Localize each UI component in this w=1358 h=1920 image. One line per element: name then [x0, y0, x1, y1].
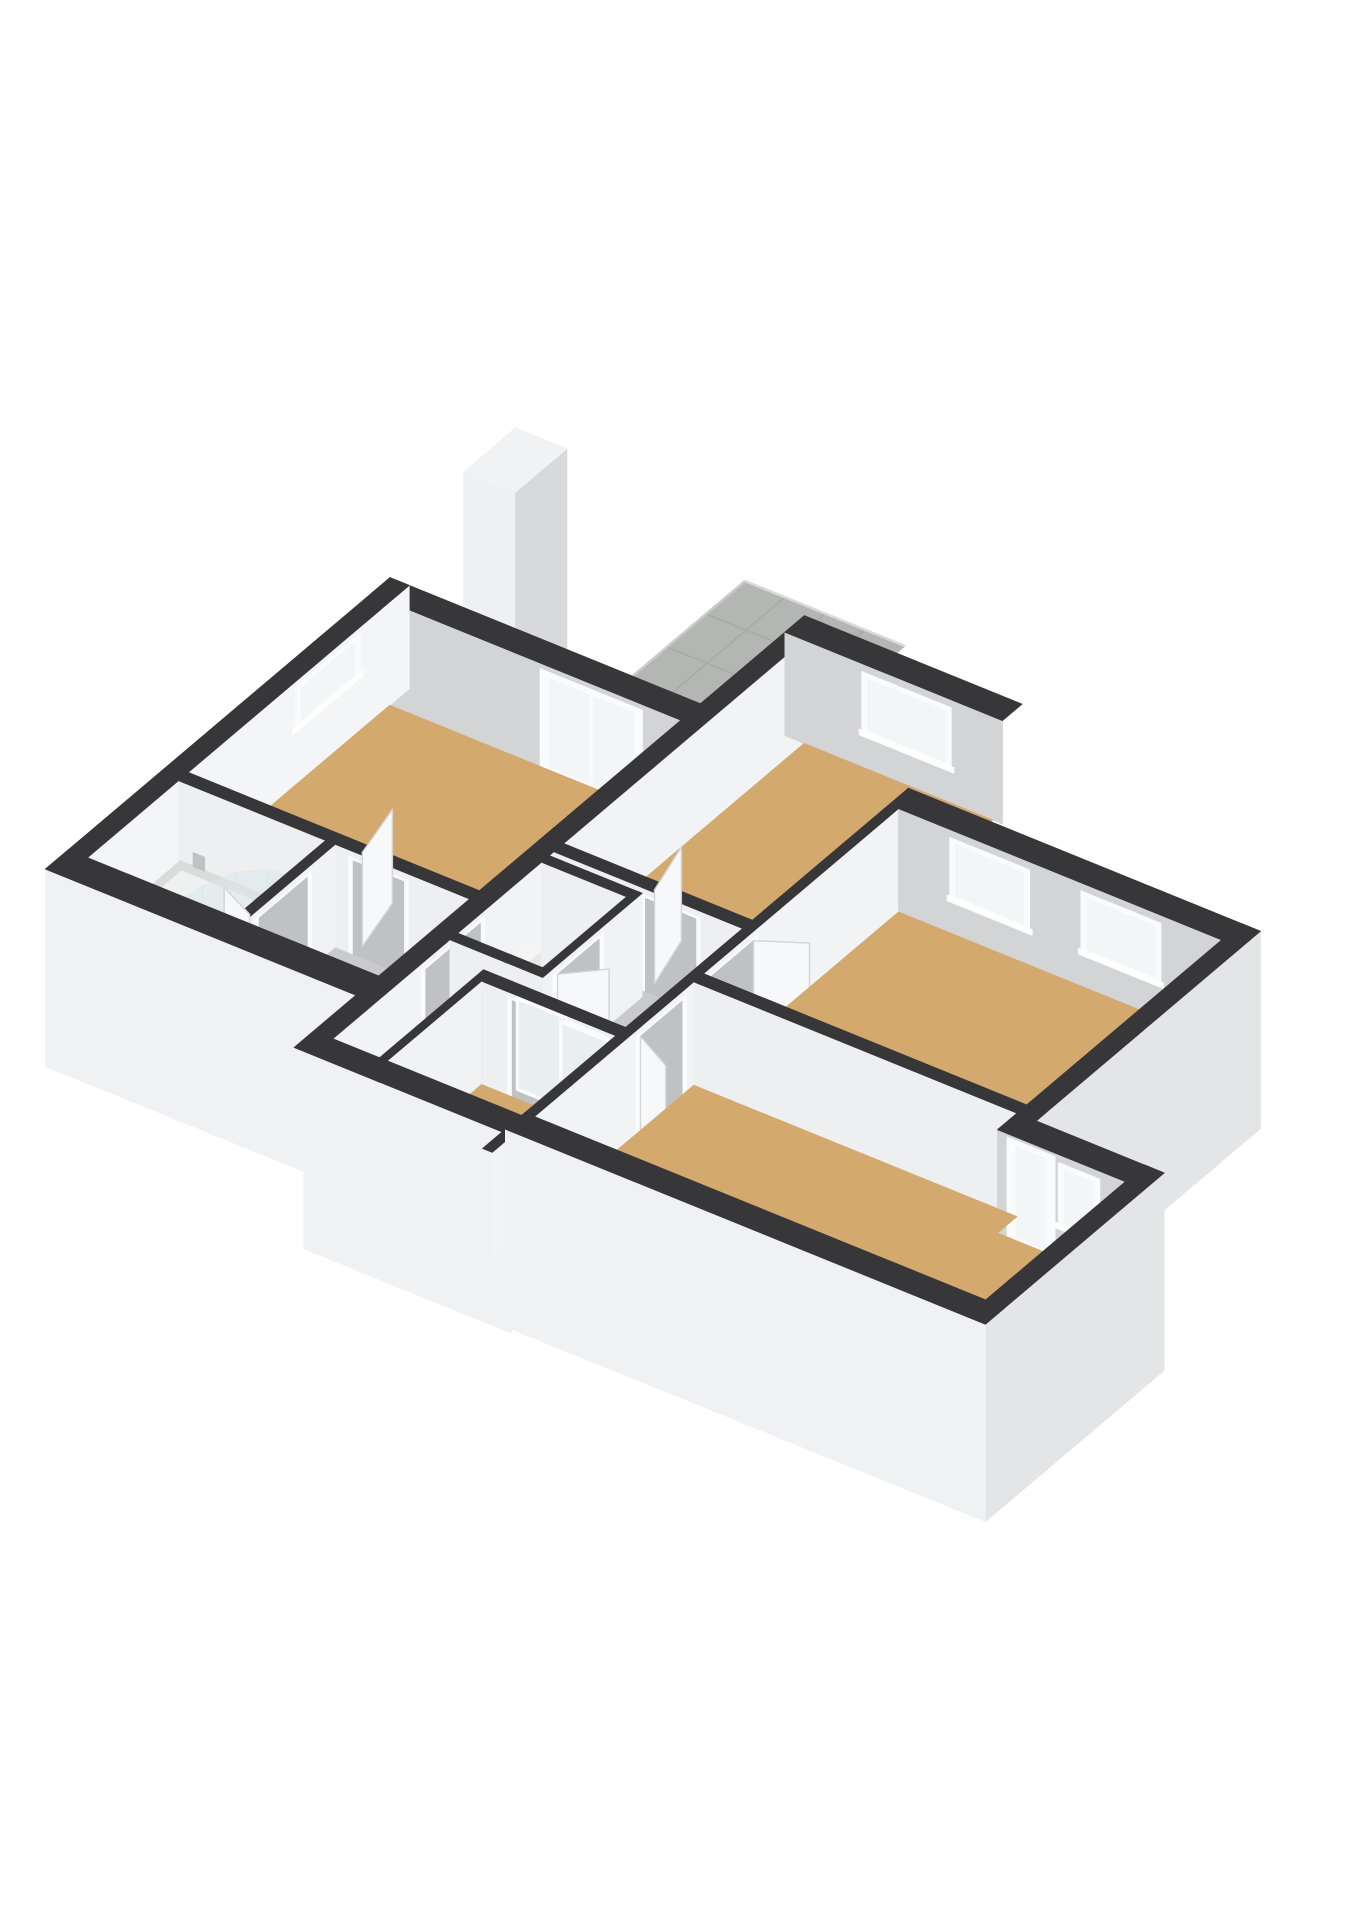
floorplan-svg: [0, 0, 1358, 1920]
wall-bedroom-large-ne-glass-door-pane: [1016, 1147, 1046, 1250]
wall-living-ne-glass-door-pane: [549, 678, 589, 783]
wall-hall-bedroom3-partition-face: [482, 981, 511, 1096]
floorplan-3d-image: [0, 0, 1358, 1920]
